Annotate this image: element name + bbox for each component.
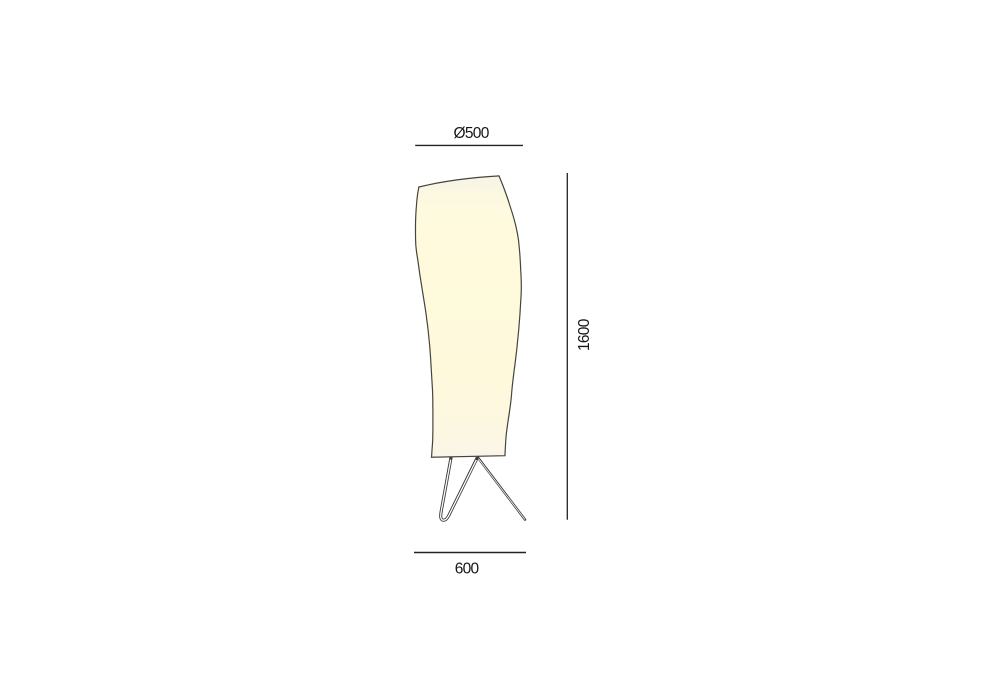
svg-text:1600: 1600 [576, 318, 593, 351]
svg-text:Ø500: Ø500 [454, 125, 490, 142]
svg-text:600: 600 [455, 560, 480, 577]
